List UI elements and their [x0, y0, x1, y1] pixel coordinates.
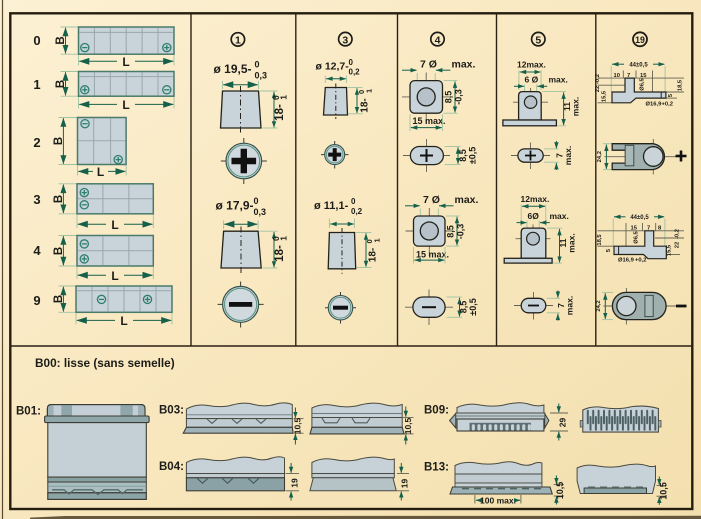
- svg-text:max.: max.: [455, 194, 479, 206]
- svg-text:18,5: 18,5: [597, 234, 603, 246]
- svg-text:18-: 18-: [360, 98, 371, 112]
- svg-text:-0,2: -0,2: [675, 229, 681, 239]
- svg-text:±0,5: ±0,5: [468, 298, 478, 315]
- svg-text:100 max.: 100 max.: [480, 495, 516, 505]
- svg-text:6 Ø: 6 Ø: [525, 75, 539, 85]
- svg-text:L: L: [122, 55, 129, 69]
- svg-text:±0,5: ±0,5: [468, 147, 478, 164]
- svg-text:18-: 18-: [368, 248, 379, 262]
- svg-text:L: L: [97, 165, 104, 179]
- svg-text:Ø16,9: Ø16,9: [646, 102, 663, 108]
- svg-text:ø 19,5-: ø 19,5-: [214, 62, 252, 76]
- svg-text:10,5: 10,5: [292, 417, 302, 434]
- svg-text:12max.: 12max.: [521, 194, 550, 204]
- svg-text:Ø6,5: Ø6,5: [634, 230, 640, 243]
- svg-text:8,5: 8,5: [458, 149, 468, 162]
- svg-text:B01:: B01:: [16, 406, 41, 418]
- svg-text:19: 19: [635, 35, 645, 45]
- svg-text:1: 1: [235, 35, 241, 47]
- svg-text:B00: lisse (sans semelle): B00: lisse (sans semelle): [35, 356, 175, 370]
- svg-text:18,5: 18,5: [678, 79, 684, 91]
- svg-text:10,5: 10,5: [403, 417, 413, 434]
- svg-text:max.: max.: [571, 97, 581, 116]
- svg-text:B04:: B04:: [159, 461, 184, 473]
- svg-text:-0,3: -0,3: [456, 224, 466, 240]
- svg-text:0,2: 0,2: [351, 207, 363, 216]
- svg-text:max.: max.: [563, 146, 573, 165]
- svg-text:1: 1: [33, 77, 40, 92]
- svg-text:B03:: B03:: [159, 405, 184, 417]
- svg-text:0: 0: [33, 33, 40, 48]
- svg-text:max.: max.: [549, 75, 568, 85]
- svg-text:15,5: 15,5: [602, 90, 608, 102]
- svg-text:0: 0: [349, 58, 354, 67]
- svg-text:4: 4: [33, 243, 41, 258]
- svg-text:L: L: [111, 218, 118, 232]
- svg-text:7 Ø: 7 Ø: [423, 194, 440, 206]
- svg-text:B: B: [55, 36, 67, 44]
- svg-text:44±0,5: 44±0,5: [630, 215, 649, 221]
- svg-text:max.: max.: [550, 211, 569, 221]
- svg-text:15 max.: 15 max.: [416, 250, 449, 260]
- svg-text:15,5: 15,5: [667, 244, 673, 256]
- svg-text:B: B: [55, 80, 67, 88]
- svg-text:6Ø: 6Ø: [528, 211, 540, 221]
- svg-text:7 Ø: 7 Ø: [420, 59, 437, 71]
- svg-text:+0,2: +0,2: [662, 102, 673, 108]
- svg-text:B09:: B09:: [424, 405, 449, 417]
- svg-text:19: 19: [289, 478, 299, 488]
- svg-text:24,2: 24,2: [596, 300, 602, 311]
- svg-text:0,2: 0,2: [349, 68, 361, 77]
- svg-text:ø 11,1-: ø 11,1-: [314, 200, 349, 212]
- svg-text:Ø6,5: Ø6,5: [640, 77, 646, 90]
- svg-text:15 max.: 15 max.: [413, 116, 446, 126]
- svg-text:12max.: 12max.: [517, 60, 546, 70]
- svg-text:B13:: B13:: [424, 462, 449, 474]
- svg-text:max.: max.: [567, 233, 577, 252]
- svg-text:8,5: 8,5: [444, 91, 454, 104]
- svg-text:+0,2: +0,2: [635, 258, 646, 264]
- svg-text:L: L: [120, 314, 127, 328]
- svg-text:5: 5: [535, 34, 541, 46]
- svg-text:-0,2: -0,2: [595, 74, 601, 84]
- svg-text:B: B: [53, 295, 65, 303]
- svg-text:B: B: [53, 247, 65, 255]
- svg-text:L: L: [111, 269, 118, 283]
- svg-text:L: L: [122, 98, 129, 112]
- svg-text:0: 0: [254, 196, 259, 206]
- svg-text:18-: 18-: [274, 245, 286, 262]
- svg-text:1: 1: [279, 236, 289, 241]
- svg-text:3: 3: [33, 192, 40, 207]
- svg-text:0,3: 0,3: [254, 207, 267, 217]
- svg-text:10,5: 10,5: [555, 482, 565, 500]
- svg-text:1: 1: [373, 238, 382, 242]
- svg-text:0,3: 0,3: [255, 71, 268, 81]
- svg-text:24,2: 24,2: [597, 151, 603, 162]
- svg-text:2: 2: [33, 135, 40, 150]
- svg-text:4: 4: [435, 34, 441, 46]
- svg-text:22: 22: [595, 86, 601, 92]
- svg-text:8,5: 8,5: [446, 225, 456, 238]
- svg-text:44±0,5: 44±0,5: [629, 62, 648, 68]
- svg-text:8,5: 8,5: [459, 301, 469, 314]
- svg-text:0: 0: [351, 197, 356, 206]
- svg-text:1: 1: [279, 95, 289, 100]
- svg-text:ø 12,7-: ø 12,7-: [316, 61, 350, 73]
- svg-text:3: 3: [342, 34, 348, 46]
- svg-text:29: 29: [557, 418, 567, 428]
- svg-text:ø 17,9-: ø 17,9-: [216, 199, 254, 213]
- svg-text:9: 9: [33, 293, 40, 308]
- svg-text:Ø16,9: Ø16,9: [618, 258, 635, 264]
- svg-text:B: B: [53, 195, 65, 203]
- svg-text:max.: max.: [565, 296, 575, 315]
- svg-text:1: 1: [365, 89, 374, 93]
- svg-text:0: 0: [255, 60, 260, 70]
- svg-text:18-: 18-: [274, 104, 286, 121]
- svg-text:B: B: [53, 137, 65, 145]
- svg-text:19: 19: [400, 479, 410, 489]
- svg-text:10,5: 10,5: [658, 482, 668, 500]
- svg-text:max.: max.: [452, 59, 476, 71]
- svg-text:22: 22: [675, 242, 681, 248]
- svg-text:-0,3: -0,3: [454, 89, 464, 105]
